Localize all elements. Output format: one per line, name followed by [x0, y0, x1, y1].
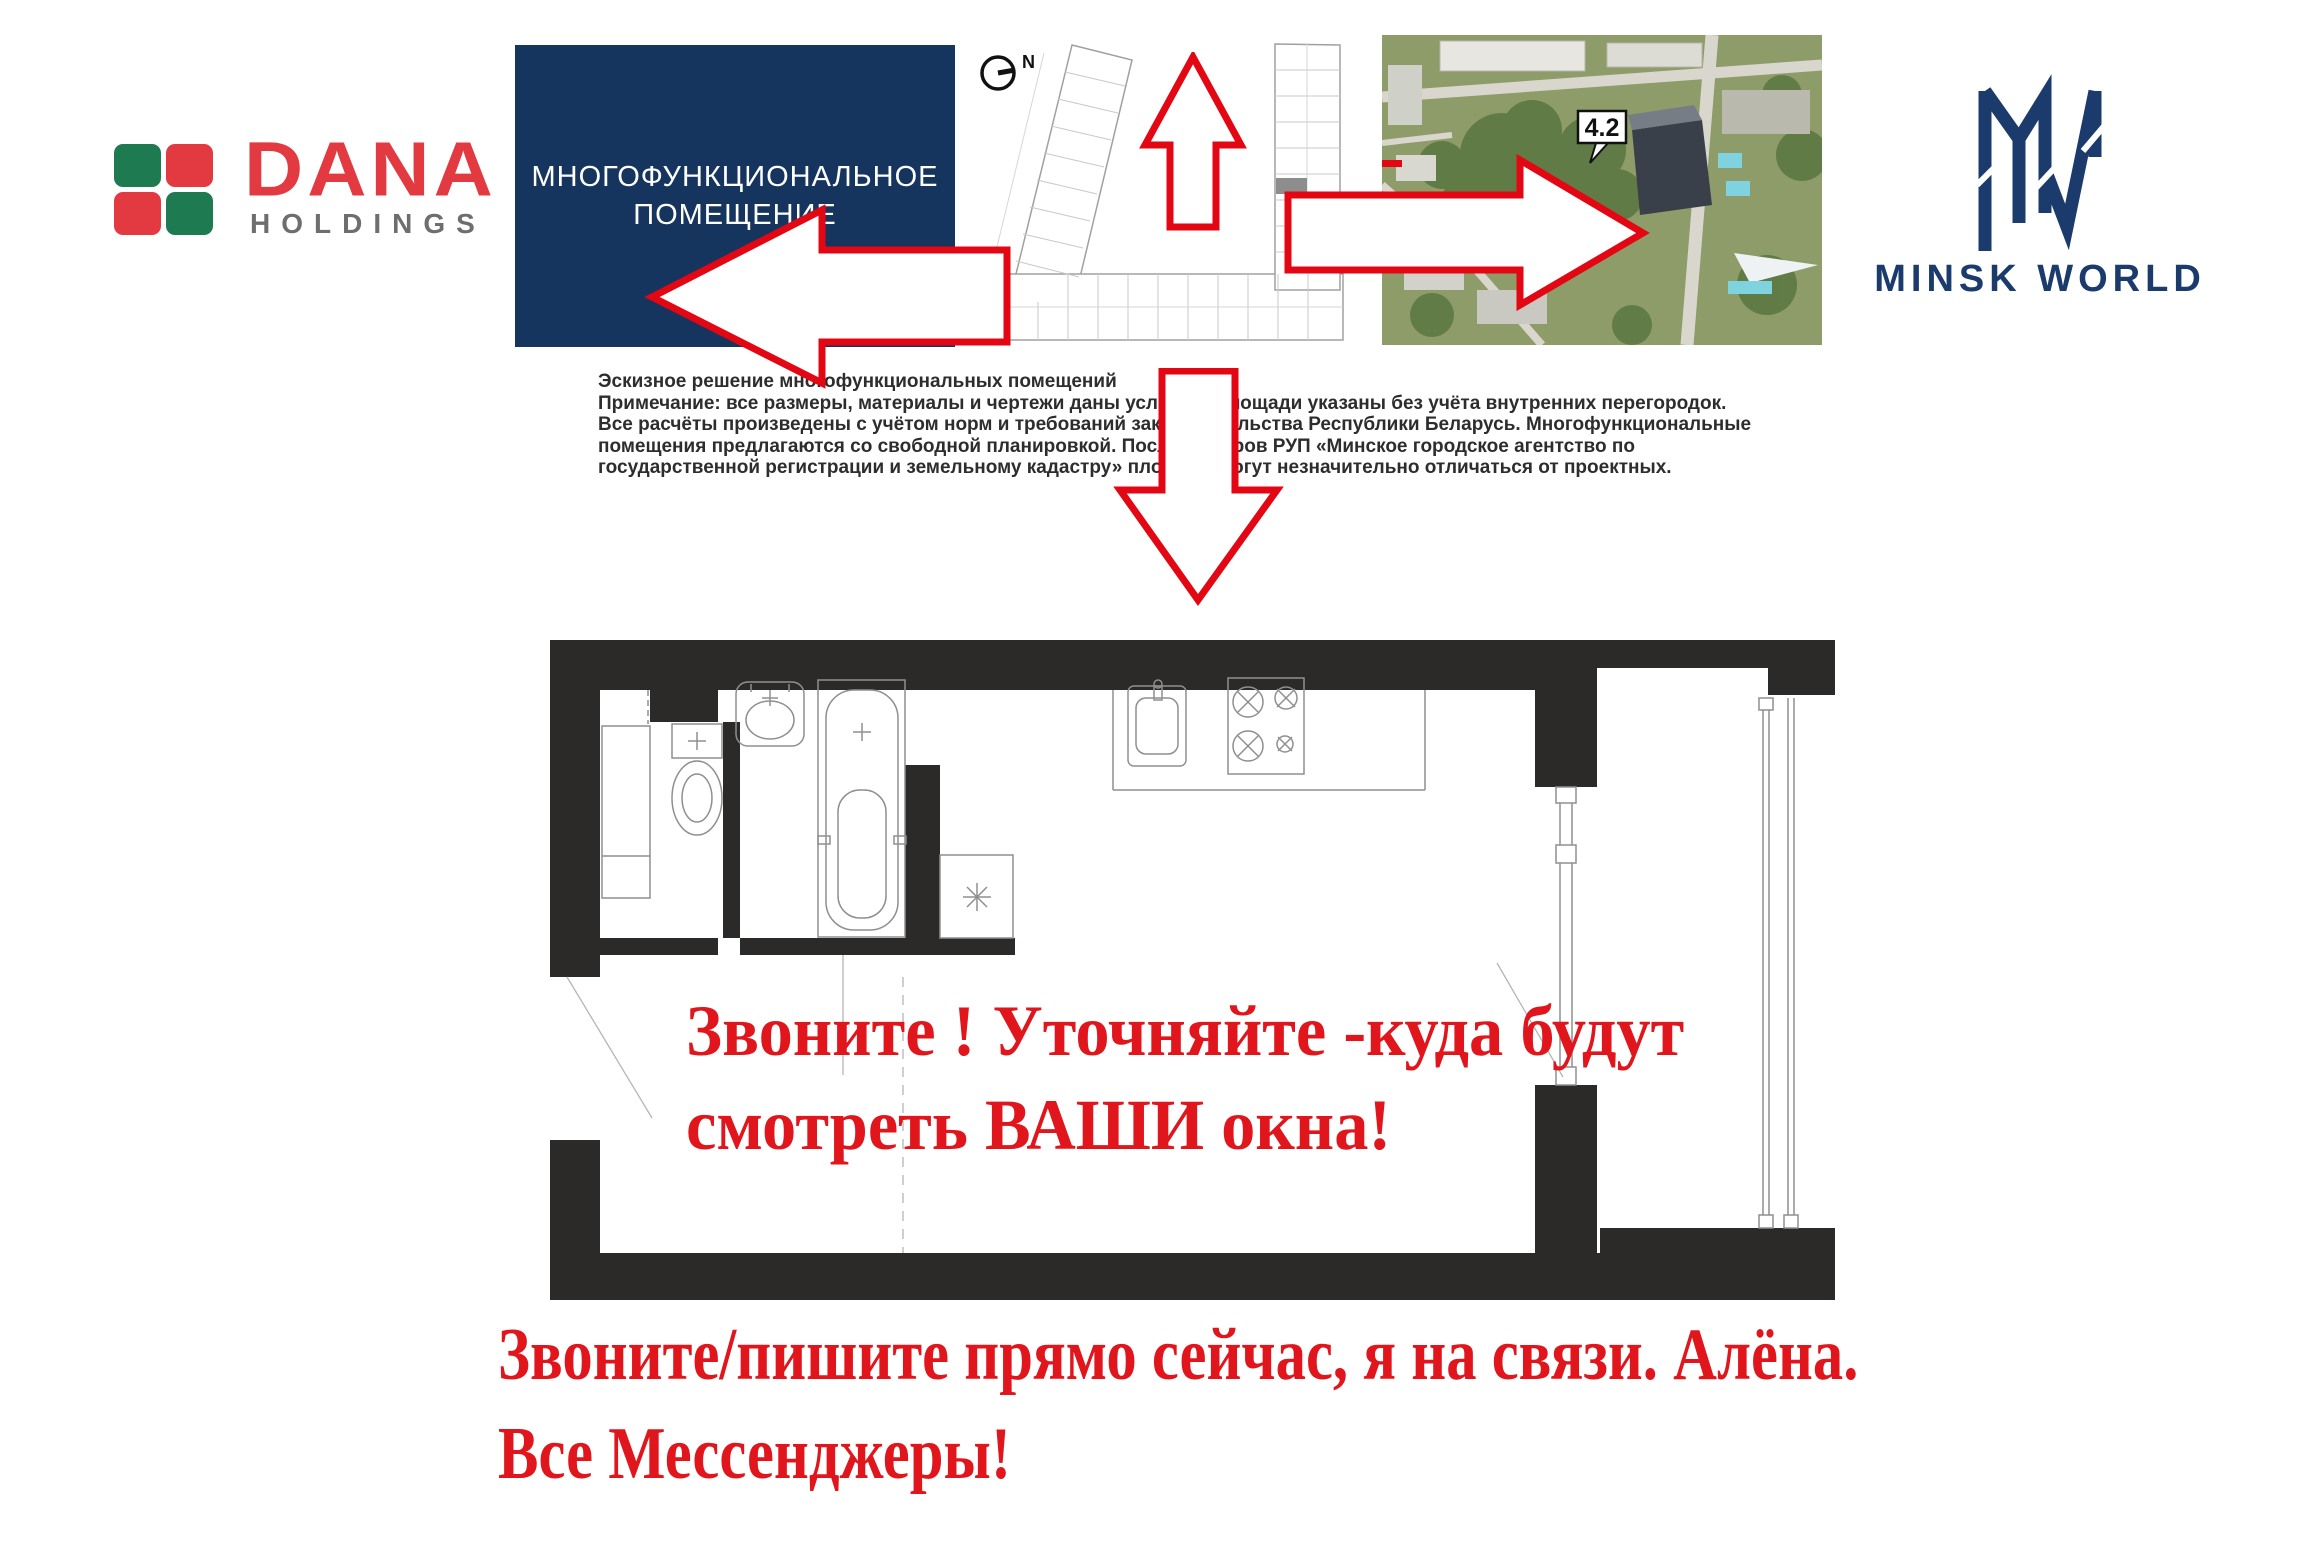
arrow-up-icon — [1138, 52, 1248, 232]
stove-fixture — [1228, 678, 1304, 774]
kitchen-counter — [1113, 690, 1425, 790]
dana-logo-word: DANA — [244, 126, 497, 214]
plan-callout-line-2: смотреть ВАШИ окна! — [686, 1078, 1684, 1172]
dana-holdings-logo: DANA HOLDINGS — [114, 140, 514, 250]
plan-callout-text: Звоните ! Уточняйте -куда будут смотреть… — [686, 984, 1684, 1172]
north-compass-icon: N — [982, 52, 1035, 89]
real-estate-flyer: DANA HOLDINGS МНОГОФУНКЦИОНАЛЬНОЕ ПОМЕЩЕ… — [0, 0, 2324, 1546]
vent-duct — [940, 855, 1013, 938]
dana-square-green-icon — [114, 144, 161, 187]
title-line-1: МНОГОФУНКЦИОНАЛЬНОЕ — [532, 158, 939, 196]
balcony-glazing — [1759, 698, 1798, 1228]
north-label: N — [1022, 52, 1035, 72]
kitchen-sink-fixture — [1128, 680, 1186, 766]
minsk-world-monogram-icon — [1955, 64, 2125, 256]
arrow-left-icon — [645, 203, 1015, 389]
contact-callout-text: Звоните/пишите прямо сейчас, я на связи.… — [498, 1306, 1858, 1504]
apartment-floor-plan — [550, 640, 1835, 1300]
arrow-right-icon — [1283, 153, 1651, 311]
contact-callout-line-1: Звоните/пишите прямо сейчас, я на связи.… — [498, 1306, 1858, 1405]
dana-logo-mark-icon — [114, 144, 212, 235]
dana-square-red-icon — [114, 192, 161, 235]
cabinet-fixture — [602, 726, 650, 898]
plan-walls — [550, 640, 1835, 1300]
plan-callout-line-1: Звоните ! Уточняйте -куда будут — [686, 984, 1684, 1078]
contact-callout-line-2: Все Мессенджеры! — [498, 1405, 1858, 1504]
arrow-down-icon — [1112, 368, 1284, 606]
dana-square-green-icon — [166, 192, 213, 235]
minsk-world-brand: MINSK WORLD — [1860, 258, 2220, 301]
entry-door-swing — [567, 977, 652, 1118]
dana-logo-subtitle: HOLDINGS — [250, 208, 486, 240]
bathtub-fixture — [818, 680, 906, 937]
washbasin-fixture — [736, 682, 804, 746]
toilet-fixture — [672, 724, 722, 835]
block-4-2-label: 4.2 — [1585, 114, 1620, 142]
dana-square-red-icon — [166, 144, 213, 187]
